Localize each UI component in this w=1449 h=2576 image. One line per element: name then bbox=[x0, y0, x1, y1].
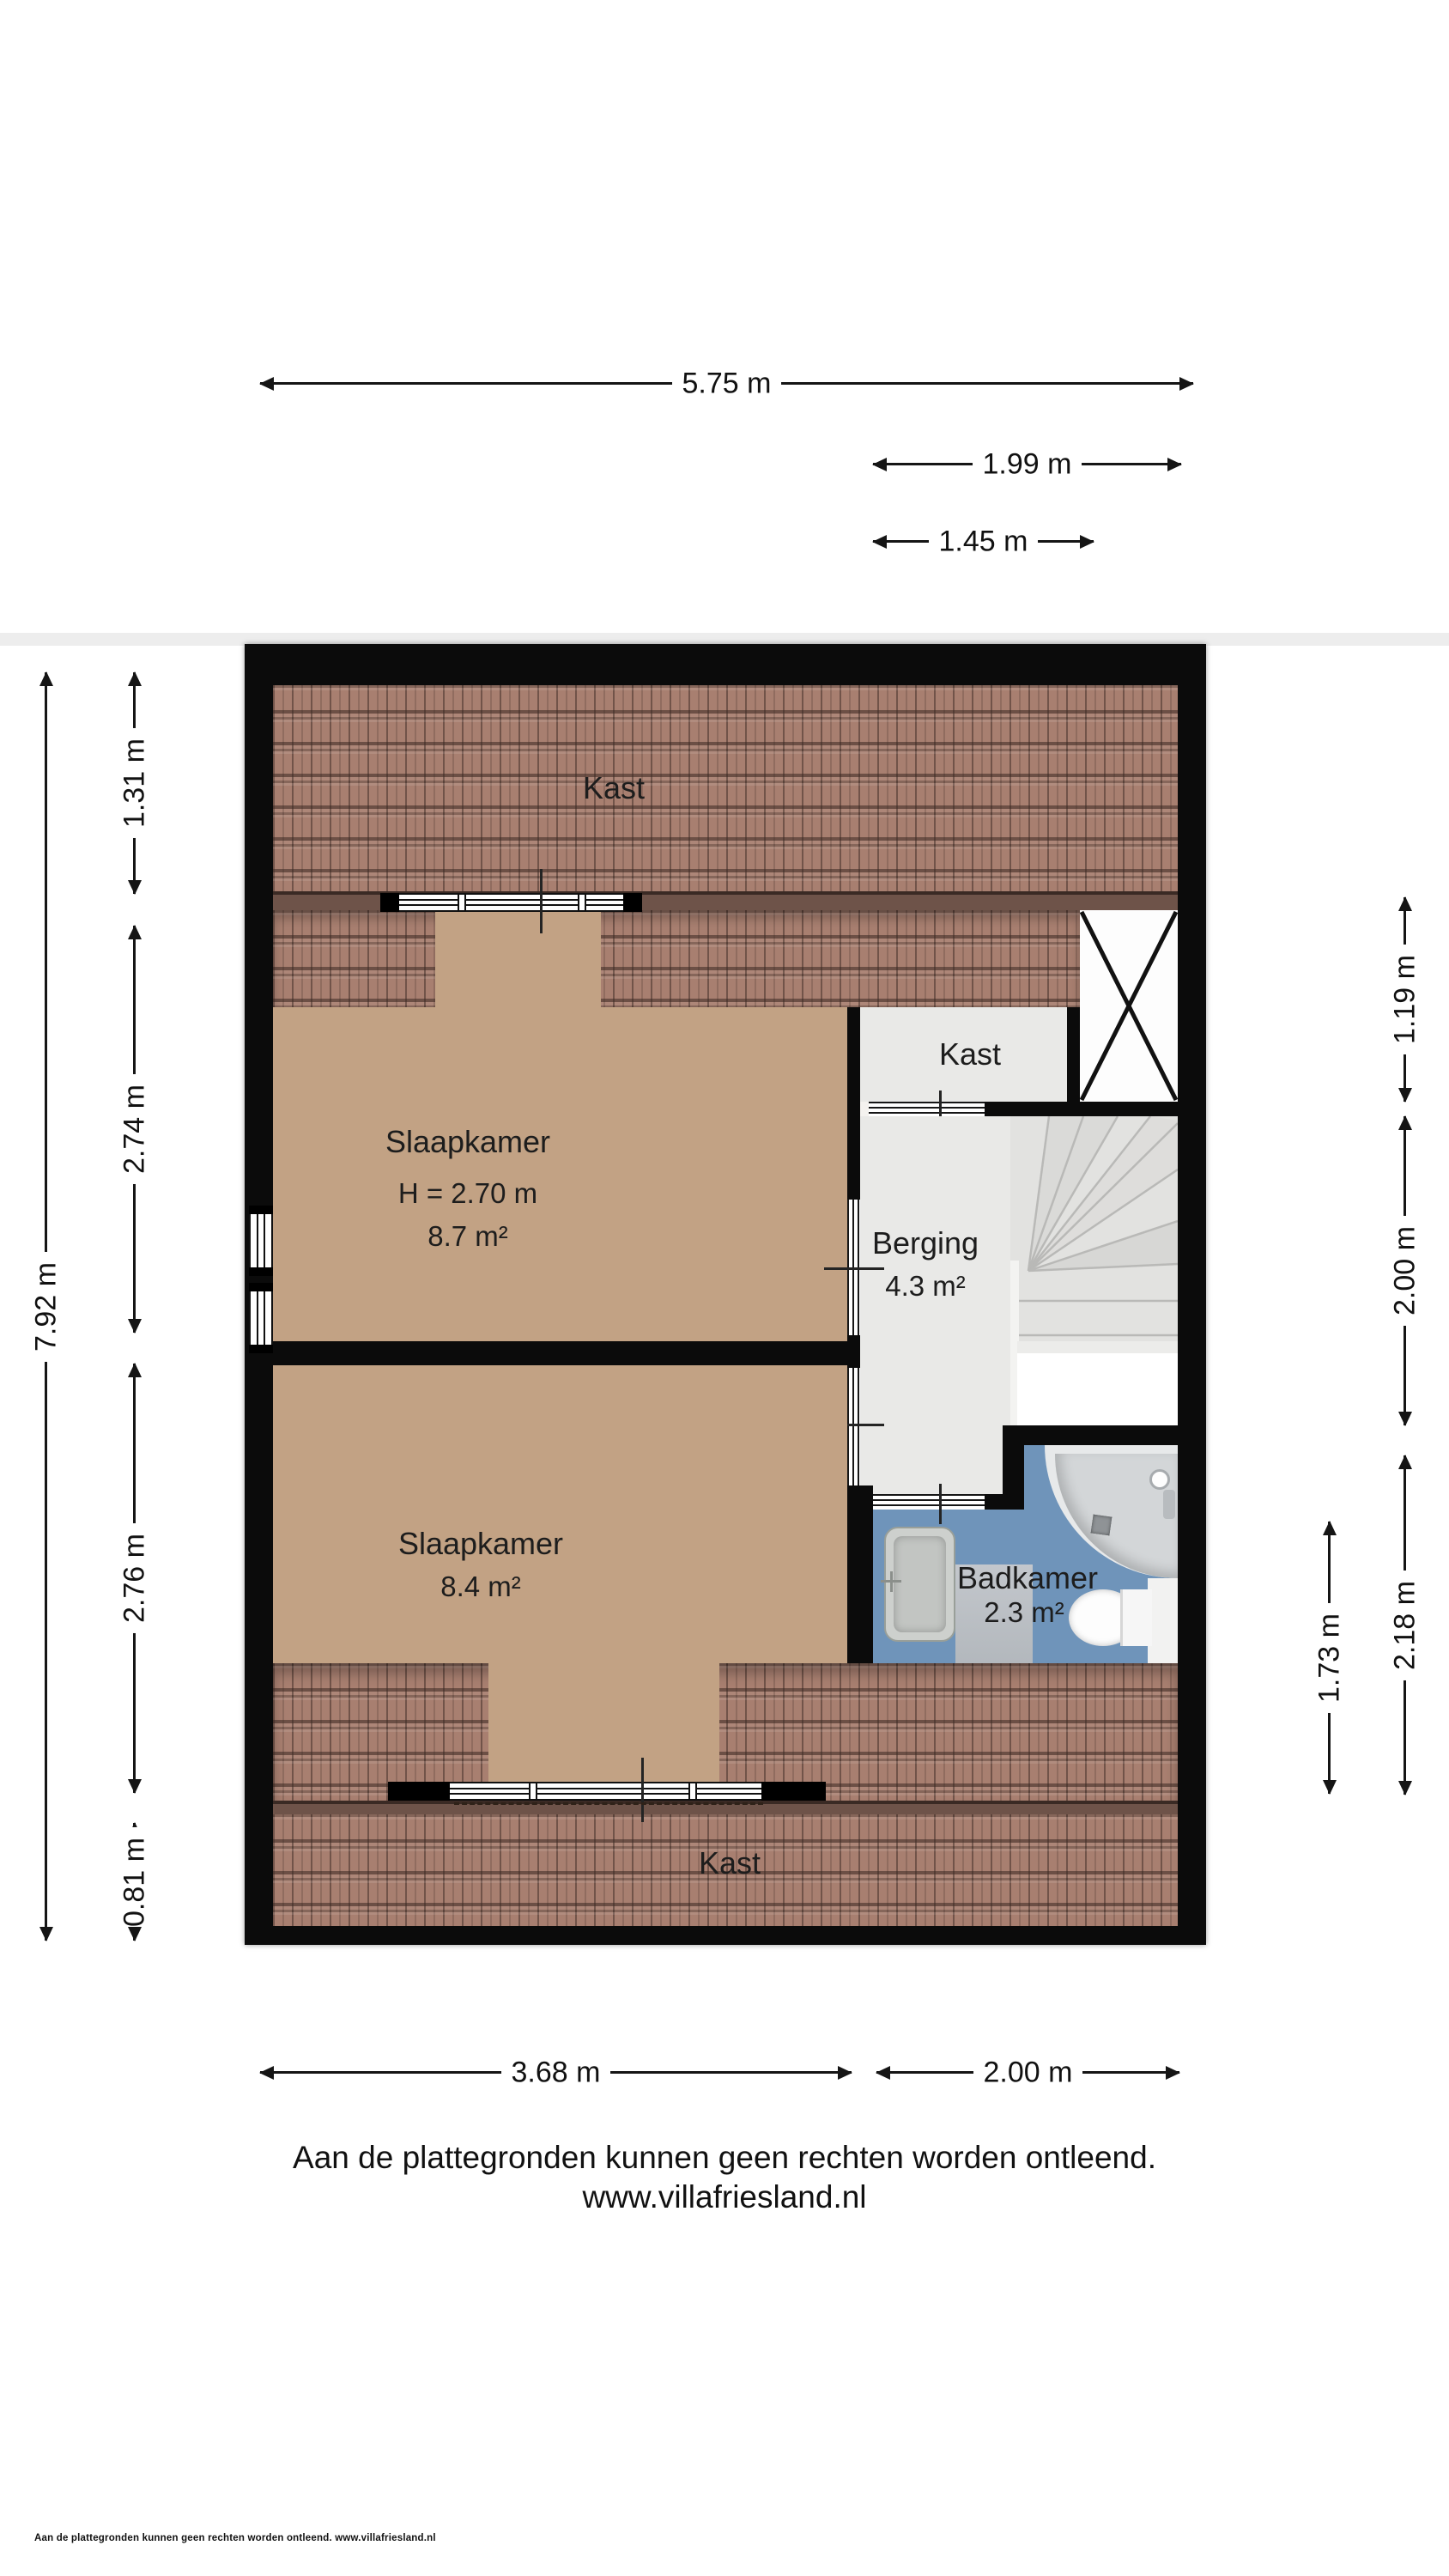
room-label-slaapkamer2: Slaapkamer bbox=[398, 1526, 563, 1562]
dim-label: 1.31 m bbox=[118, 728, 152, 838]
dim-label: 0.81 m bbox=[118, 1827, 152, 1937]
floorplan-page: 5.75 m 1.99 m 1.45 m 7.92 m 1.31 m 2.74 … bbox=[0, 0, 1449, 2576]
dim-top-199: 1.99 m bbox=[873, 463, 1181, 465]
roof-band-top-lower bbox=[273, 910, 1080, 1007]
window-mullion bbox=[529, 1783, 537, 1799]
left-wall-window-upper bbox=[249, 1212, 273, 1269]
footer-disclaimer: Aan de plattegronden kunnen geen rechten… bbox=[0, 2140, 1449, 2176]
dormer-window-bottom bbox=[388, 1782, 826, 1801]
void-x-lines bbox=[1080, 910, 1178, 1102]
dim-label: 1.99 m bbox=[973, 448, 1082, 482]
window-end-block bbox=[249, 1267, 273, 1276]
window-end-block bbox=[761, 1782, 826, 1801]
dim-right-200: 2.00 m bbox=[1404, 1116, 1406, 1425]
room-area-slaapkamer2: 8.4 m² bbox=[440, 1571, 521, 1603]
bath-wall-strip bbox=[1148, 1578, 1178, 1663]
dim-label: 2.76 m bbox=[118, 1523, 152, 1633]
dim-bottom-200: 2.00 m bbox=[876, 2071, 1179, 2074]
stairs bbox=[1010, 1116, 1178, 1425]
footer-small-print: Aan de plattegronden kunnen geen rechten… bbox=[34, 2533, 436, 2543]
void-x bbox=[1080, 910, 1178, 1102]
faucet-icon-v bbox=[890, 1571, 893, 1592]
wall-bath-top bbox=[1003, 1425, 1178, 1445]
wall-bath-left bbox=[847, 1485, 873, 1663]
wall-threshold-stub bbox=[985, 1494, 1003, 1510]
window-end-block bbox=[249, 1283, 273, 1291]
roof-band-bottom-upper bbox=[273, 1663, 1178, 1801]
dim-label: 2.18 m bbox=[1389, 1571, 1422, 1680]
room-label-berging: Berging bbox=[872, 1225, 979, 1261]
roof-dashed-line bbox=[454, 1802, 763, 1805]
window-center-tick bbox=[540, 869, 543, 933]
room-label-badkamer: Badkamer bbox=[957, 1560, 1098, 1596]
dim-label: 2.00 m bbox=[973, 2057, 1083, 2090]
door-center-tick bbox=[939, 1484, 942, 1524]
wall-berging-left-a bbox=[847, 1115, 860, 1200]
window-mullion bbox=[578, 895, 586, 910]
roof-band-top-upper bbox=[273, 685, 1178, 910]
window-mullion bbox=[688, 1783, 697, 1799]
plan-outer-walls: Kast Kast Slaapkamer H bbox=[245, 644, 1206, 1945]
room-slaapkamer1 bbox=[273, 1007, 847, 1341]
stairs-treads bbox=[1010, 1116, 1178, 1425]
dim-label: 1.19 m bbox=[1389, 945, 1422, 1054]
room-slaapkamer2 bbox=[273, 1365, 847, 1663]
window-mullion bbox=[458, 895, 466, 910]
dim-top-575: 5.75 m bbox=[260, 382, 1193, 385]
dim-label: 7.92 m bbox=[30, 1252, 64, 1362]
dim-left-276: 2.76 m bbox=[133, 1364, 136, 1793]
wall-void-left bbox=[1067, 1007, 1080, 1102]
window-end-block bbox=[380, 893, 399, 912]
room-area-slaapkamer1: 8.7 m² bbox=[427, 1220, 508, 1253]
room-label-kast-small: Kast bbox=[939, 1036, 1001, 1072]
dim-left-081: 0.81 m bbox=[133, 1823, 136, 1941]
dim-label: 5.75 m bbox=[672, 368, 782, 401]
dim-label: 1.73 m bbox=[1313, 1603, 1347, 1713]
shower-handle-icon bbox=[1163, 1490, 1175, 1519]
dim-label: 1.45 m bbox=[929, 526, 1039, 559]
window-end-block bbox=[623, 893, 642, 912]
room-label-kast-top: Kast bbox=[583, 770, 645, 806]
washbasin bbox=[884, 1527, 955, 1642]
window-end-block bbox=[249, 1345, 273, 1353]
dormer-window-top bbox=[380, 893, 642, 912]
footer-website: www.villafriesland.nl bbox=[0, 2179, 1449, 2215]
door-kast-berging bbox=[869, 1102, 985, 1116]
dim-top-145: 1.45 m bbox=[873, 540, 1094, 543]
washbasin-bowl bbox=[894, 1536, 946, 1632]
wall-bedroom-divider bbox=[273, 1341, 860, 1365]
shower-mixer-icon bbox=[1149, 1469, 1170, 1490]
room-label-slaapkamer1: Slaapkamer bbox=[385, 1124, 550, 1160]
window-center-tick bbox=[641, 1758, 644, 1822]
shower-drain-icon bbox=[1091, 1515, 1113, 1536]
door-center-tick bbox=[824, 1267, 884, 1270]
dim-bottom-368: 3.68 m bbox=[260, 2071, 852, 2074]
room-area-berging: 4.3 m² bbox=[885, 1270, 966, 1303]
door-berging-badkamer bbox=[873, 1494, 985, 1510]
dim-label: 3.68 m bbox=[501, 2057, 611, 2090]
toilet-cistern bbox=[1120, 1589, 1152, 1646]
wall-bath-jamb bbox=[1003, 1445, 1024, 1510]
room-area-badkamer: 2.3 m² bbox=[984, 1596, 1064, 1629]
window-end-block bbox=[249, 1206, 273, 1214]
left-wall-window-lower bbox=[249, 1290, 273, 1346]
room-height-slaapkamer1: H = 2.70 m bbox=[398, 1177, 537, 1210]
dim-label: 2.00 m bbox=[1389, 1216, 1422, 1326]
door-bedroom2-berging bbox=[847, 1368, 860, 1485]
window-end-block bbox=[388, 1782, 450, 1801]
dim-right-173: 1.73 m bbox=[1328, 1522, 1331, 1794]
dim-left-274: 2.74 m bbox=[133, 926, 136, 1333]
dim-right-119: 1.19 m bbox=[1404, 897, 1406, 1102]
dim-left-792: 7.92 m bbox=[45, 672, 47, 1941]
wall-under-kast bbox=[985, 1102, 1178, 1116]
wall-berging-left-b bbox=[847, 1335, 860, 1368]
dim-right-218: 2.18 m bbox=[1404, 1455, 1406, 1795]
dormer-recess-bottom bbox=[488, 1663, 719, 1783]
dim-left-131: 1.31 m bbox=[133, 672, 136, 894]
dim-label: 2.74 m bbox=[118, 1074, 152, 1184]
room-label-kast-bottom: Kast bbox=[699, 1845, 761, 1881]
room-berging bbox=[860, 1116, 1010, 1494]
